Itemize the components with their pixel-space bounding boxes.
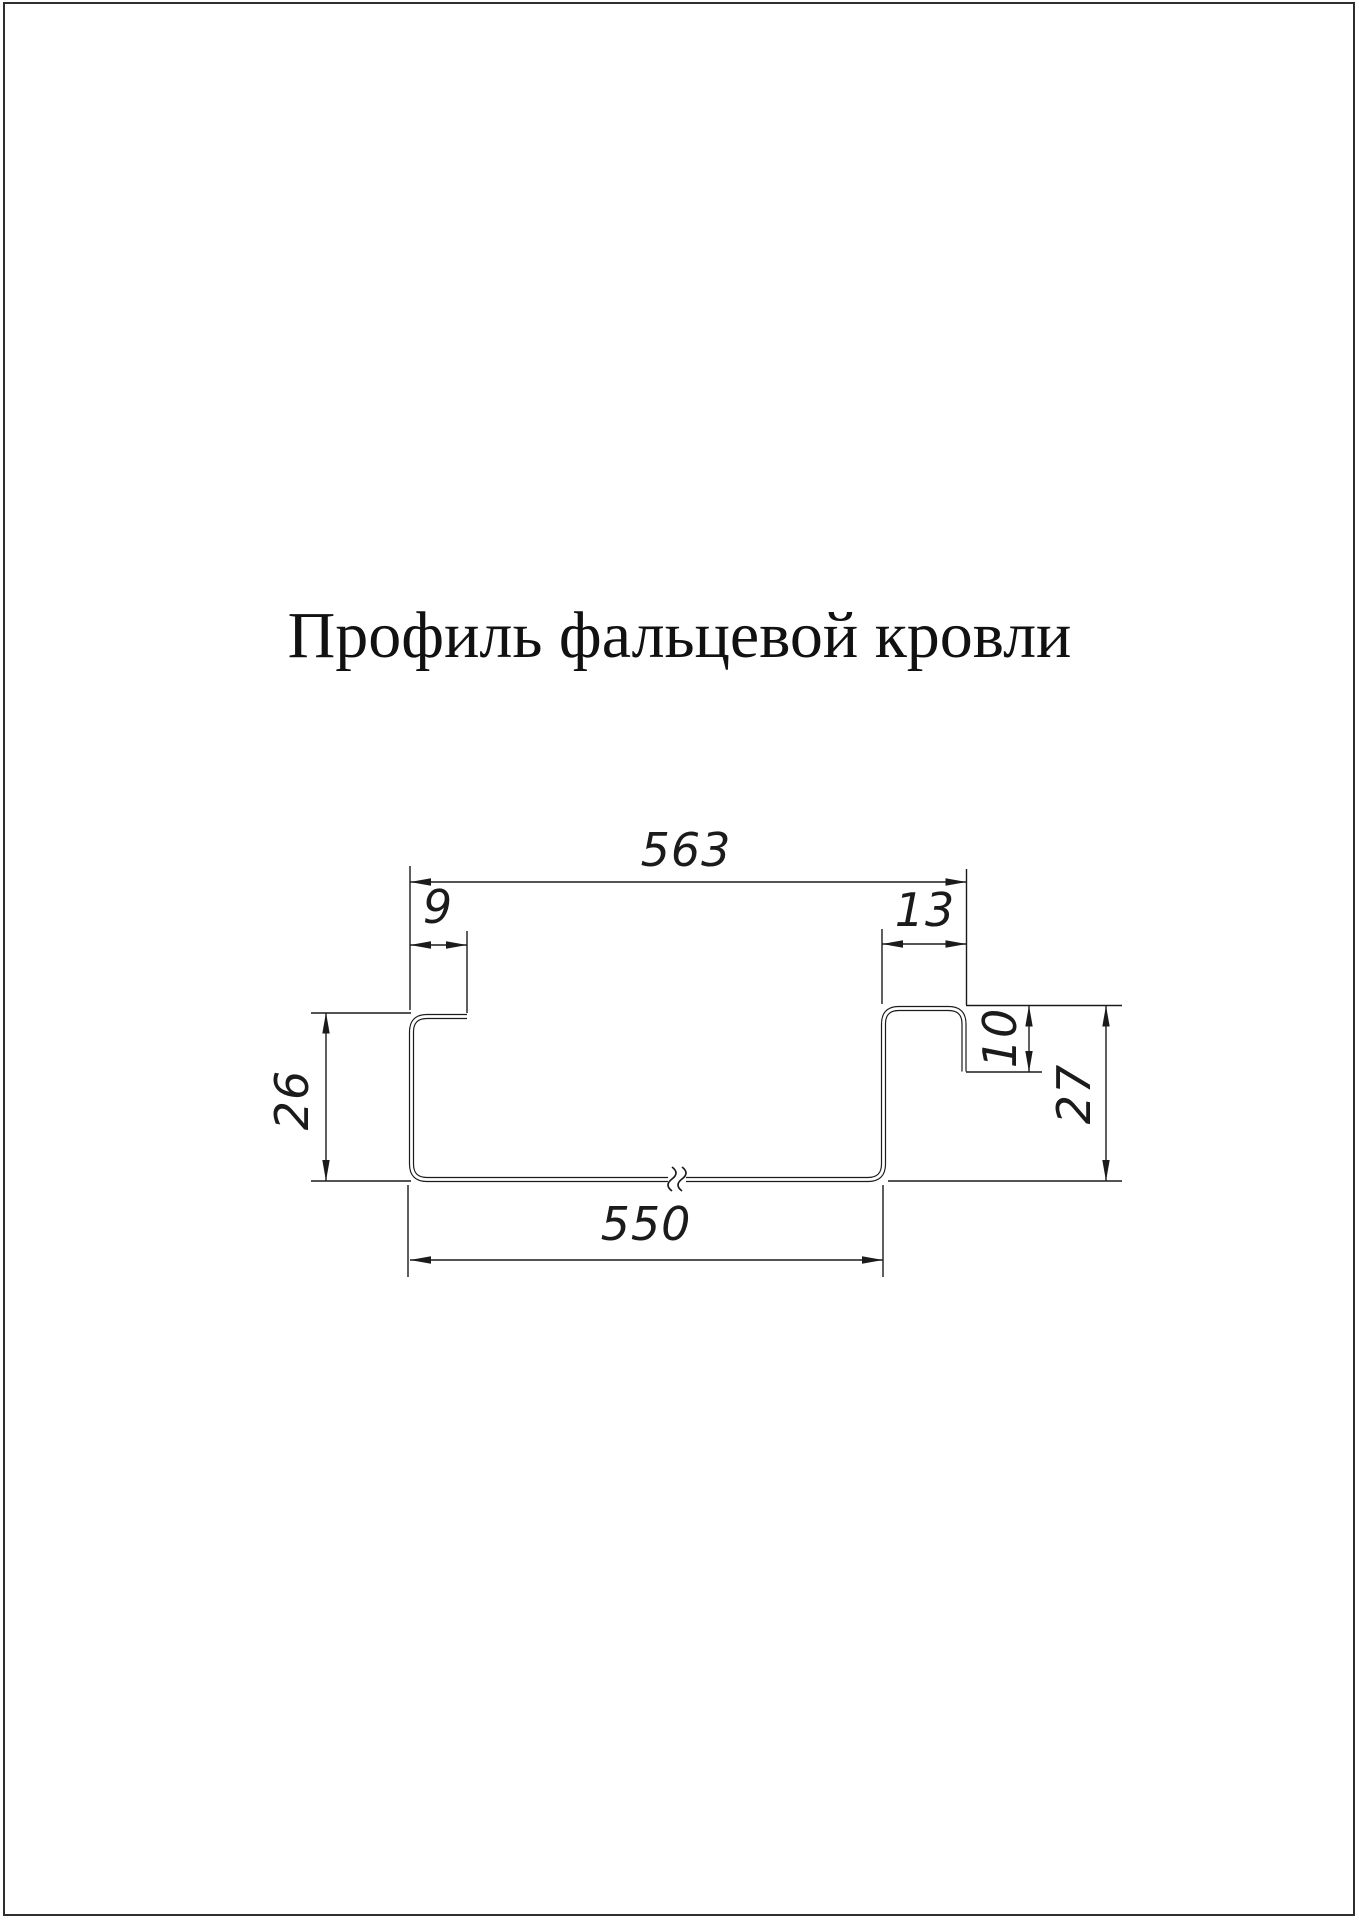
dimension-lines <box>326 882 1106 1260</box>
arrow-9-right <box>446 941 467 948</box>
profile-drawing: 563 9 13 26 10 27 550 <box>0 0 1359 1920</box>
arrow-550-right <box>862 1256 883 1263</box>
arrow-27-down <box>1102 1160 1109 1181</box>
arrow-9-left <box>410 941 431 948</box>
dim-label-550: 550 <box>601 1197 692 1251</box>
dim-label-26: 26 <box>265 1070 319 1131</box>
profile-outline <box>412 1009 965 1180</box>
arrow-27-up <box>1102 1006 1109 1027</box>
dim-label-10: 10 <box>973 1008 1027 1069</box>
arrow-13-right <box>946 940 967 947</box>
dimension-arrows <box>322 878 1109 1263</box>
arrow-26-down <box>322 1160 329 1181</box>
dim-label-563: 563 <box>641 823 732 877</box>
arrow-550-left <box>410 1256 431 1263</box>
arrow-26-up <box>322 1013 329 1034</box>
arrow-13-left <box>882 940 903 947</box>
dim-label-27: 27 <box>1047 1064 1101 1125</box>
profile-outline-group <box>412 1009 965 1192</box>
dim-label-9: 9 <box>423 880 453 934</box>
dim-label-13: 13 <box>895 883 956 937</box>
drawing-sheet: Профиль фальцевой кровли <box>0 0 1359 1920</box>
